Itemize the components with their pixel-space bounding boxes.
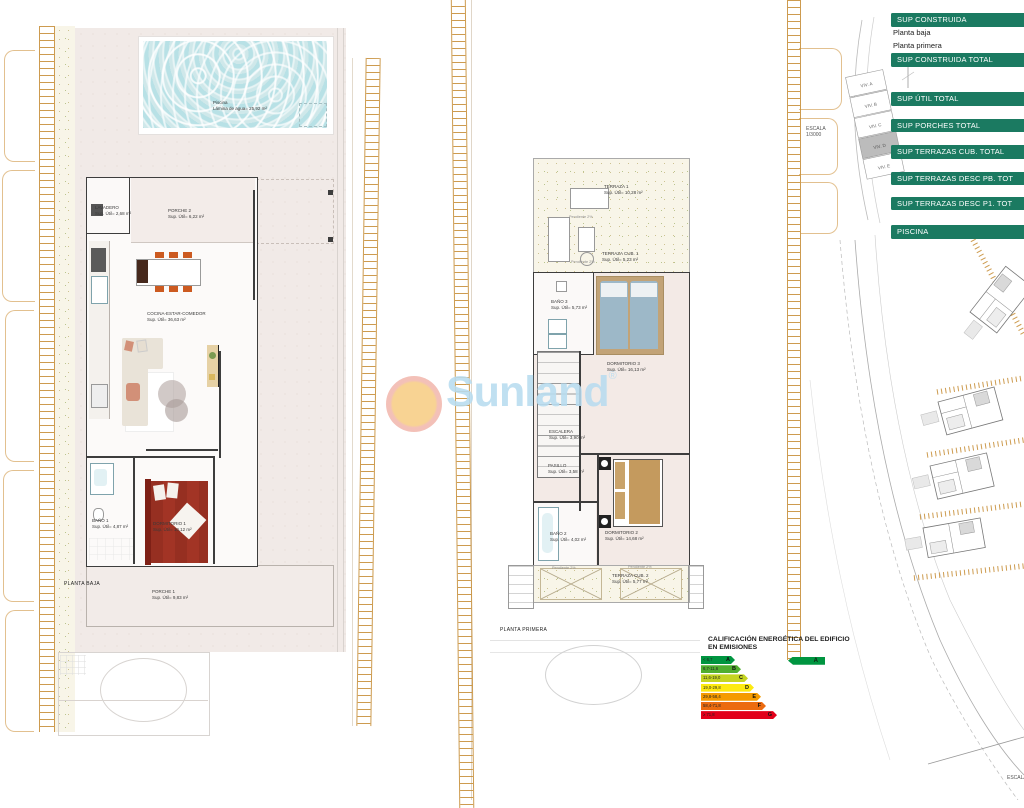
dining-chair	[155, 252, 164, 258]
ghost-ellipse	[100, 658, 187, 722]
table-row-util-total: SUP ÚTIL TOTAL	[891, 92, 1024, 106]
table-row-piscina: PISCINA	[891, 225, 1024, 239]
shower-tiles	[89, 538, 133, 560]
room-label-porche1: PORCHE 1Sup. Útil= 9,83 m²	[152, 589, 188, 600]
energy-band-g: ≥ 71,8G	[701, 711, 777, 719]
bottom-scale-label: ESCALA	[1007, 775, 1024, 781]
dining-bench	[137, 260, 148, 283]
fridge	[91, 384, 108, 408]
bed-blanket-tan	[629, 460, 660, 524]
energy-band-a: < 6,7A	[701, 656, 735, 664]
table-row-terrazas-desc-pb: SUP TERRAZAS DESC PB. TOT	[891, 172, 1024, 186]
plan-title-ground: PLANTA BAJA	[64, 581, 100, 587]
first-floor-building	[533, 272, 690, 567]
table-row-planta-baja: Planta baja	[891, 27, 1024, 39]
plot-ladder	[920, 504, 1024, 517]
energy-scale: < 6,7A 6,7-11,6B 11,6-19,0C 19,0-29,8D 2…	[701, 656, 791, 720]
plot-ladder	[927, 440, 1024, 455]
room-label-dormitorio3: DORMITORIO 3Sup. Útil= 16,13 m²	[607, 361, 646, 372]
pergola	[540, 568, 602, 600]
exterior-stair	[508, 565, 534, 609]
sun-icon	[386, 376, 442, 432]
slope-note: Pendiente 2%	[569, 215, 593, 219]
energy-title-line1: CALIFICACIÓN ENERGÉTICA DEL EDIFICIO	[708, 636, 893, 644]
dining-chair	[169, 286, 178, 292]
room-label-lavadero: LAVADEROSup. Útil= 2,68 m²	[95, 205, 131, 216]
porch2-roof-outline	[256, 179, 334, 244]
boundary-ladder-left	[39, 26, 55, 732]
wall	[146, 449, 218, 451]
table-row-planta-primera: Planta primera	[891, 40, 1024, 52]
site-house	[903, 518, 985, 561]
room-label-terraza1: TERRAZA 1Sup. Útil= 10,28 m²	[604, 184, 643, 195]
road-edge	[928, 737, 1024, 764]
parcel-curve	[2, 170, 35, 302]
wall	[534, 501, 597, 503]
dining-chair	[169, 252, 178, 258]
ghost-line	[490, 640, 700, 641]
wall	[253, 190, 255, 300]
plot-ladder	[937, 378, 1024, 392]
table-row-terrazas-cub: SUP TERRAZAS CUB. TOTAL	[891, 145, 1024, 159]
exterior-stair	[688, 565, 704, 609]
energy-title: CALIFICACIÓN ENERGÉTICA DEL EDIFICIO EN …	[708, 636, 893, 652]
site-house	[919, 387, 1003, 440]
terrace-planter	[548, 217, 570, 262]
plot-ladder	[914, 566, 1024, 578]
wall	[219, 351, 221, 458]
road	[810, 380, 890, 760]
ghost-grid	[60, 655, 86, 675]
dining-chair	[183, 252, 192, 258]
porch-pillar	[328, 237, 333, 242]
slope-note: Pendiente 2%	[552, 566, 576, 570]
parcel-curve	[3, 470, 34, 602]
table-row-construida-total: SUP CONSTRUIDA TOTAL	[891, 53, 1024, 67]
ghost-dome	[545, 645, 642, 705]
table-row-porches-total: SUP PORCHES TOTAL	[891, 119, 1024, 133]
parcel-curve	[5, 310, 34, 462]
boundary-ladder-right	[787, 0, 801, 660]
bathroom-sink	[548, 319, 567, 334]
kitchen-sink	[91, 276, 108, 304]
dining-chair	[155, 286, 164, 292]
room-label-terraza-cub2: TERRAZA CUB. 2Sup. Útil= 5,77 m²	[612, 573, 649, 584]
nightstand-lamp	[601, 518, 608, 525]
bed-pillow-tan	[615, 492, 625, 519]
room-label-bano1: BAÑO 1Sup. Útil= 4,87 m²	[92, 518, 128, 529]
room-label-terraza-cub1: TERRAZA CUB. 1Sup. Útil= 5,23 m²	[602, 251, 639, 262]
energy-band-c: 11,6-19,0C	[701, 674, 748, 682]
boundary-ladder-mid1	[356, 58, 380, 726]
bed-pillow	[166, 482, 179, 498]
plan-title-first: PLANTA PRIMERA	[500, 627, 547, 633]
plot-edge-line	[343, 28, 344, 652]
wall	[213, 458, 215, 564]
dining-chair	[183, 286, 192, 292]
slope-note: Pendiente 2%	[571, 260, 595, 264]
room-label-pasillo: PASILLOSup. Útil= 3,58 m²	[548, 463, 584, 474]
energy-band-b: 6,7-11,6B	[701, 665, 741, 673]
ground-floor-building	[86, 177, 258, 567]
lounge-chair	[126, 383, 140, 401]
sofa-pillow	[136, 339, 148, 352]
survey-line	[352, 58, 353, 726]
bed-pillow	[631, 283, 657, 297]
plot-edge-line	[337, 28, 338, 652]
porch-pillar	[328, 190, 333, 195]
decor-box	[209, 374, 215, 380]
wall	[87, 456, 215, 458]
bed-pillow-tan	[615, 462, 625, 489]
bed-pillow	[153, 484, 166, 500]
parcel-curve	[5, 610, 34, 732]
slope-note: Pendiente 2%	[628, 565, 652, 569]
room-label-cocina: COCINA-ESTAR-COMEDORSup. Útil= 36,63 m²	[147, 311, 206, 322]
oven	[91, 248, 106, 272]
nightstand-lamp	[601, 460, 608, 467]
bathroom-sink	[548, 334, 567, 349]
terrain-strip	[55, 26, 75, 732]
scale-value: 1/3000	[806, 132, 826, 138]
parcel-curve	[4, 50, 35, 162]
energy-band-e: 29,8-58,4E	[701, 693, 761, 701]
energy-band-d: 19,0-29,8D	[701, 684, 754, 692]
energy-rating-indicator: A	[788, 657, 825, 665]
room-label-bano2: BAÑO 2Sup. Útil= 4,02 m²	[550, 531, 586, 542]
energy-band-f: 58,4-71,8F	[701, 702, 766, 710]
table-row-sup-construida: SUP CONSTRUIDA	[891, 13, 1024, 27]
room-label-dormitorio1: DORMITORIO 1Sup. Útil= 10,12 m²	[153, 521, 192, 532]
wall	[597, 454, 599, 566]
site-house	[911, 453, 995, 504]
wall-cabinet	[556, 281, 567, 292]
table-row-terrazas-desc-p1: SUP TERRAZAS DESC P1. TOT	[891, 197, 1024, 211]
room-label-porche2: PORCHE 2Sup. Útil= 6,22 m²	[168, 208, 204, 219]
terrace-planter	[578, 227, 595, 252]
pouf	[165, 399, 188, 422]
room-label-bano3: BAÑO 3Sup. Útil= 5,73 m²	[551, 299, 587, 310]
room-label-dormitorio2: DORMITORIO 2Sup. Útil= 14,68 m²	[605, 530, 644, 541]
wall	[579, 453, 689, 455]
staircase	[537, 351, 581, 478]
room-label-escalera: ESCALERASup. Útil= 3,90 m²	[549, 429, 585, 440]
energy-title-line2: EN EMISIONES	[708, 644, 893, 652]
plant	[209, 352, 216, 359]
pool-steps	[299, 103, 327, 127]
scale-note: ESCALA 1/3000	[806, 126, 826, 138]
wall	[133, 458, 135, 564]
porch1-outline	[86, 565, 334, 627]
sink-basin	[94, 469, 107, 486]
pool-label: PiscinaLámina de agua= 25,92 m²	[213, 100, 267, 111]
bed-pillow	[601, 283, 627, 297]
